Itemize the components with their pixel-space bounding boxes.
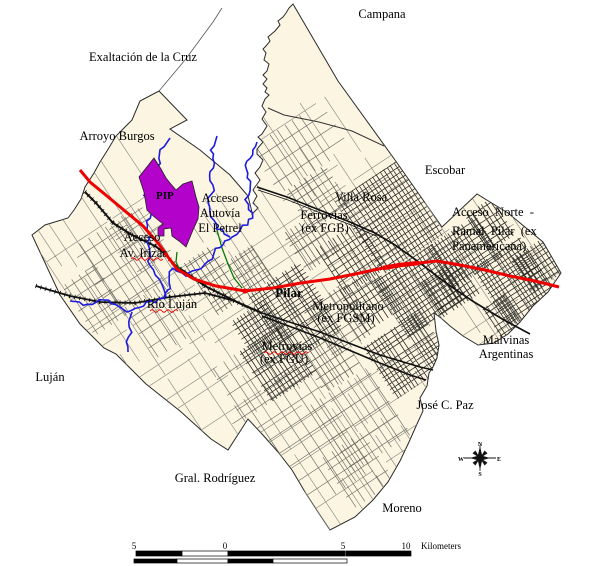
svg-text:E: E: [497, 457, 501, 463]
svg-text:Campana: Campana: [358, 7, 406, 21]
svg-text:Moreno: Moreno: [382, 501, 422, 515]
svg-text:W: W: [458, 457, 464, 463]
svg-text:Gral. Rodríguez: Gral. Rodríguez: [175, 471, 256, 485]
svg-text:10: 10: [402, 541, 412, 551]
svg-text:(ex FGU): (ex FGU): [260, 352, 308, 366]
svg-text:Malvinas: Malvinas: [483, 333, 530, 347]
svg-text:PIP: PIP: [156, 190, 174, 202]
svg-text:5: 5: [132, 541, 137, 551]
svg-text:Arroyo Burgos: Arroyo Burgos: [79, 129, 154, 143]
svg-text:Pilar: Pilar: [275, 285, 303, 300]
svg-text:Ramal Pilar (ex: Ramal Pilar (ex: [452, 224, 537, 238]
svg-text:Acceso Norte -: Acceso Norte -: [452, 205, 534, 219]
svg-text:Ferrovías: Ferrovías: [300, 208, 347, 222]
svg-text:0: 0: [223, 541, 228, 551]
svg-text:(ex FGB): (ex FGB): [301, 221, 349, 235]
svg-text:Villa Rosa: Villa Rosa: [335, 190, 388, 204]
svg-text:Luján: Luján: [35, 370, 65, 384]
svg-text:Exaltación de la Cruz: Exaltación de la Cruz: [89, 50, 197, 64]
svg-text:Escobar: Escobar: [425, 163, 466, 177]
svg-text:Av. Irízar: Av. Irízar: [120, 246, 168, 260]
svg-text:Panamericana): Panamericana): [452, 239, 526, 253]
svg-text:(ex FGSM): (ex FGSM): [317, 311, 374, 325]
svg-text:El Petrel: El Petrel: [198, 221, 242, 235]
svg-text:Autovía: Autovía: [200, 206, 241, 220]
svg-text:Argentinas: Argentinas: [479, 347, 534, 361]
svg-text:Metrovías: Metrovías: [262, 339, 313, 353]
svg-text:S: S: [478, 472, 482, 478]
svg-text:5: 5: [341, 541, 346, 551]
svg-text:Acceso: Acceso: [202, 191, 239, 205]
svg-text:José C. Paz: José C. Paz: [416, 398, 474, 412]
svg-text:Acceso: Acceso: [124, 230, 161, 244]
svg-text:Río Luján: Río Luján: [147, 297, 198, 311]
svg-text:Kilometers: Kilometers: [421, 541, 461, 551]
